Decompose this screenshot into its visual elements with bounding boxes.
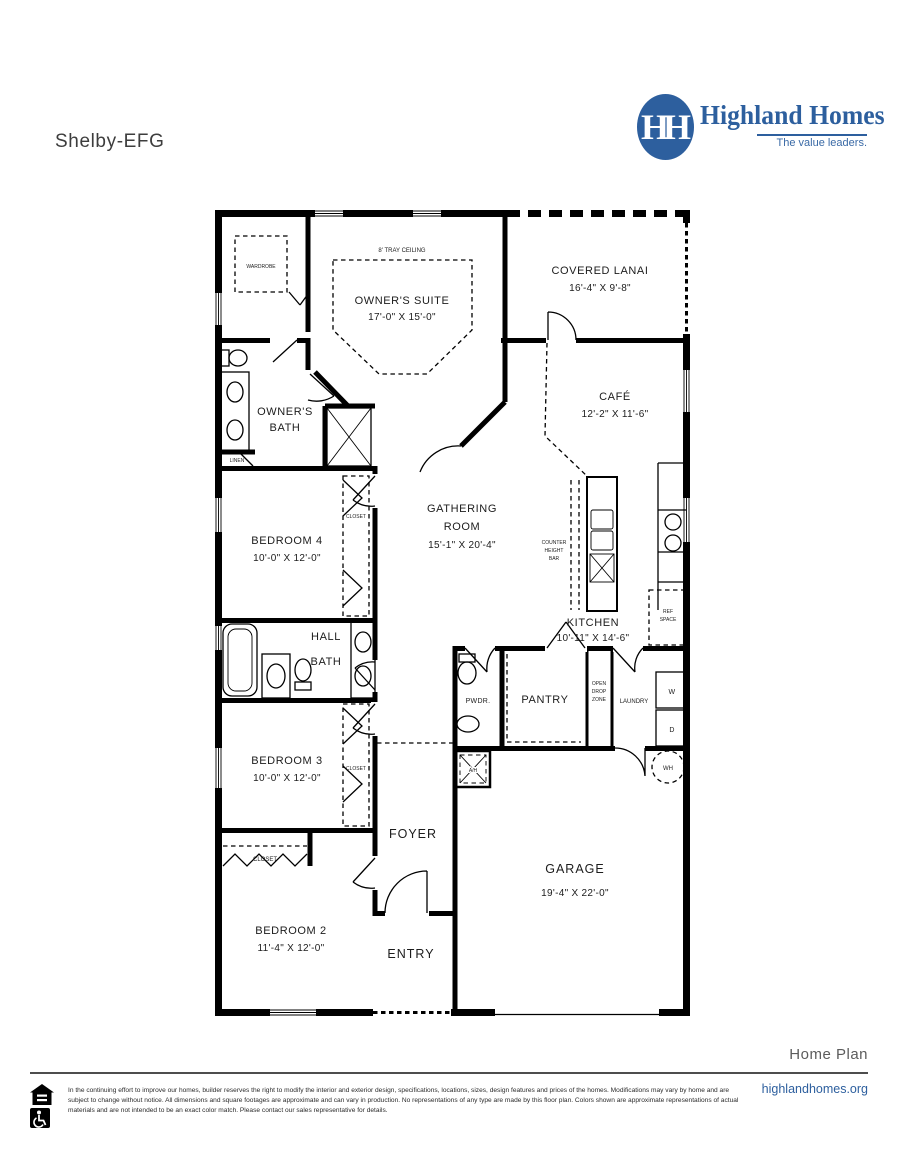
logo-monogram-oval: HH: [637, 94, 694, 160]
drop-zone-label-2: DROP: [592, 689, 607, 695]
bedroom3-closet: [343, 704, 369, 826]
sink-icon: [227, 420, 243, 440]
bedroom2-label: BEDROOM 2: [255, 925, 326, 937]
hall-bath-label-1: HALL: [311, 631, 341, 643]
counter-bar-edge: [571, 480, 579, 610]
owners-bath-label-1: OWNER'S: [257, 406, 313, 418]
logo-monogram: HH: [641, 106, 685, 148]
washer-label: W: [669, 689, 676, 696]
vanity: [262, 654, 290, 698]
drop-zone-label-3: ZONE: [592, 697, 607, 703]
toilet-icon: [295, 659, 311, 690]
garage-dims: 19'-4" X 22'-0": [541, 888, 609, 899]
air-handler-label: A/H: [469, 768, 478, 774]
owners-suite-label: OWNER'S SUITE: [355, 295, 450, 307]
bedroom4-label: BEDROOM 4: [251, 535, 322, 547]
floor-plan-drawing: 8' TRAY CEILING OWNER'S SUITE 17'-0" X 1…: [215, 210, 697, 1020]
gathering-label-1: GATHERING: [427, 503, 497, 515]
bathtub-icon: [223, 624, 257, 696]
dishwasher-icon: [590, 554, 614, 582]
gathering-label-2: ROOM: [444, 521, 481, 533]
bedroom2-closet-label: CLOSET: [253, 857, 277, 863]
brand-tagline: The value leaders.: [757, 134, 867, 149]
brand-name: Highland Homes: [700, 100, 859, 131]
footer-section-label: Home Plan: [789, 1046, 868, 1063]
interior-walls: [215, 210, 690, 1013]
toilet-icon: [458, 654, 476, 684]
covered-lanai-label: COVERED LANAI: [551, 265, 648, 277]
ref-space-label-1: REF: [663, 609, 673, 615]
hall-bath-label-2: BATH: [311, 656, 342, 668]
highland-homes-logo: HH Highland Homes The value leaders.: [637, 94, 867, 164]
footer-icons: [30, 1084, 54, 1131]
sink-icon: [591, 510, 613, 529]
footer-divider: [30, 1072, 868, 1074]
disclaimer-text: In the continuing effort to improve our …: [68, 1086, 740, 1117]
cooktop-icon: [665, 514, 681, 551]
bedroom3-dims: 10'-0" X 12'-0": [253, 773, 321, 784]
laundry-label: LAUNDRY: [620, 699, 649, 705]
ref-space-label-2: SPACE: [660, 617, 677, 623]
pwdr-label: PWDR.: [466, 698, 491, 705]
website-link[interactable]: highlandhomes.org: [762, 1082, 868, 1096]
door-arcs: [241, 292, 645, 913]
wardrobe-label: WARDROBE: [246, 264, 276, 270]
toilet-icon: [221, 350, 247, 366]
shower-icon: [327, 408, 371, 466]
gathering-dims: 15'-1" X 20'-4": [428, 540, 496, 551]
owners-suite-dims: 17'-0" X 15'-0": [368, 312, 436, 323]
cafe-dims: 12'-2" X 11'-6": [582, 409, 649, 420]
sink-icon: [355, 632, 371, 652]
linen-label: LINEN: [230, 458, 245, 464]
counter-bar-label-3: BAR: [549, 556, 560, 562]
sink-icon: [227, 382, 243, 402]
water-heater-label: WH: [663, 766, 673, 772]
drop-zone-label-1: OPEN: [592, 681, 607, 687]
page-title: Shelby-EFG: [55, 131, 164, 153]
garage-label: GARAGE: [545, 862, 605, 876]
bedroom2-dims: 11'-4" X 12'-0": [258, 943, 325, 954]
sink-icon: [267, 664, 285, 688]
kitchen-island: [587, 477, 617, 611]
dryer-label: D: [669, 727, 674, 734]
cafe-label: CAFÉ: [599, 390, 631, 403]
bedroom3-closet-label: CLOSET: [346, 766, 366, 772]
owners-bath-label-2: BATH: [270, 422, 301, 434]
pantry-label: PANTRY: [521, 694, 568, 706]
kitchen-dims: 10'-11" X 14'-6": [557, 633, 630, 644]
bedroom4-closet-label: CLOSET: [346, 514, 366, 520]
entry-label: ENTRY: [387, 947, 434, 961]
accessibility-icon: [30, 1108, 50, 1128]
covered-lanai-dims: 16'-4" X 9'-8": [569, 283, 631, 294]
foyer-label: FOYER: [389, 827, 437, 841]
counter-bar-label-1: COUNTER: [542, 540, 567, 546]
kitchen-counter: [658, 463, 687, 610]
sink-icon: [457, 716, 479, 732]
sink-icon: [591, 531, 613, 550]
tray-ceiling-label: 8' TRAY CEILING: [378, 248, 425, 254]
equal-housing-icon: [30, 1084, 54, 1105]
kitchen-label: KITCHEN: [567, 617, 619, 629]
bedroom4-dims: 10'-0" X 12'-0": [253, 553, 321, 564]
bedroom3-label: BEDROOM 3: [251, 755, 322, 767]
counter-bar-label-2: HEIGHT: [545, 548, 564, 554]
